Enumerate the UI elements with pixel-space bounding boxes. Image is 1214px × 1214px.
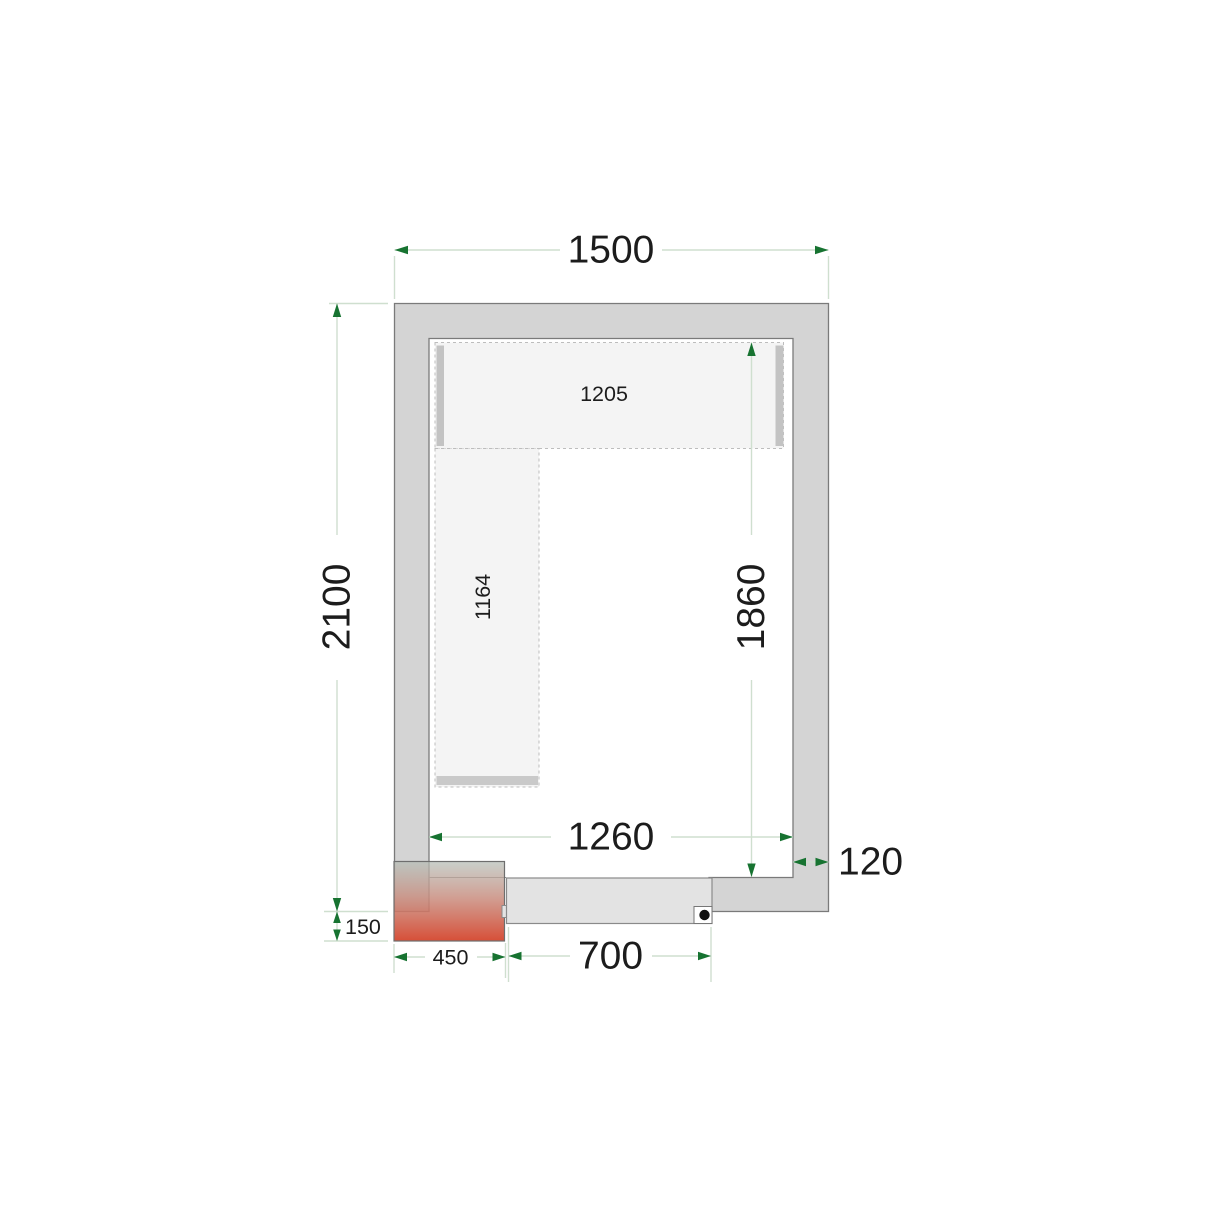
dim-label-wall-thickness: 120 [838, 841, 903, 884]
dim-label-outer-width: 1500 [568, 229, 655, 272]
top-shelf-right-support-bar [776, 346, 784, 447]
dim-label-unit-width: 450 [433, 946, 469, 970]
floor-plan-page: 1500 2100 1860 1260 120 150 [0, 0, 1214, 1214]
dim-label-outer-depth: 2100 [316, 564, 359, 651]
door-handle-dot-icon [699, 910, 709, 920]
door-leaf [507, 878, 713, 924]
floor-plan-drawing: 1500 2100 1860 1260 120 150 [0, 0, 1214, 1214]
dim-label-top-shelf-length: 1205 [580, 382, 628, 406]
dim-arrow-down [747, 864, 755, 878]
dim-arrow-right [493, 953, 506, 961]
dim-arrow-left [429, 833, 442, 841]
top-shelf-left-support-bar [437, 346, 445, 447]
dim-arrow-up [333, 912, 341, 924]
dim-label-unit-overhang: 150 [345, 915, 381, 939]
dim-arrow-left [509, 952, 522, 960]
left-shelf-bottom-support-bar [437, 776, 539, 785]
sliding-door [502, 878, 712, 924]
dim-arrow-left [394, 953, 407, 961]
dim-arrow-right [815, 246, 829, 254]
dim-arrow-down [333, 898, 341, 912]
dim-label-door-width: 700 [578, 935, 643, 978]
dim-label-side-shelf-length: 1164 [471, 574, 495, 620]
dim-arrow-right [698, 952, 711, 960]
dim-label-inner-width: 1260 [568, 816, 655, 859]
dim-arrow-right [780, 833, 793, 841]
dim-arrow-down [333, 930, 341, 942]
dim-arrow-up [333, 304, 341, 318]
condensing-unit-zone [394, 862, 505, 942]
dim-arrow-left [395, 246, 409, 254]
dim-label-inner-depth: 1860 [730, 564, 773, 651]
